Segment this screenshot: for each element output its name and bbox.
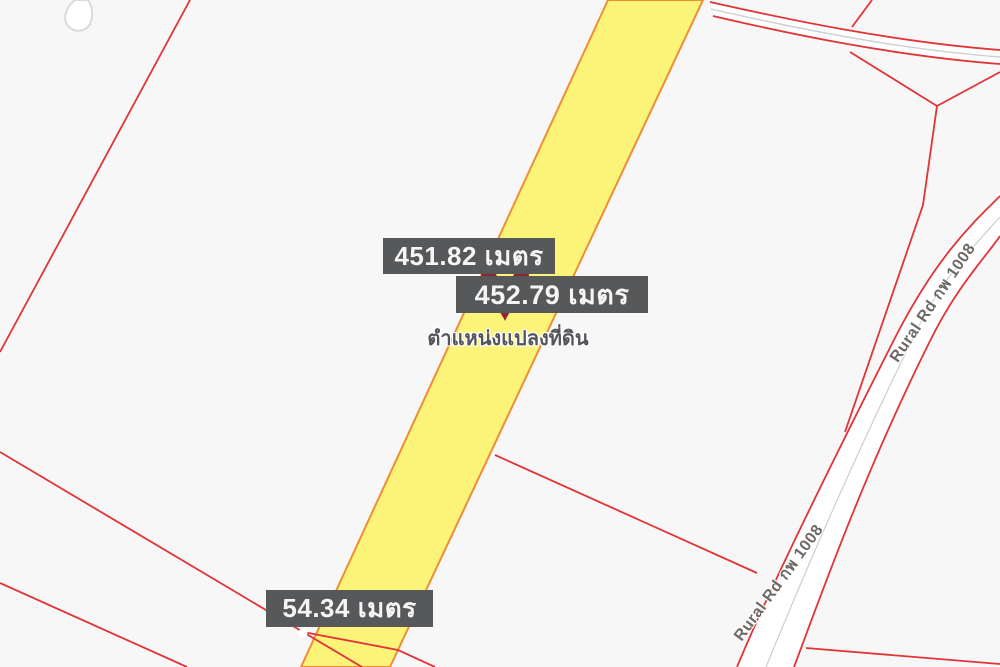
boundary-line-bottomright bbox=[806, 648, 1000, 664]
boundary-line-parcel-to-road bbox=[495, 455, 757, 573]
boundary-line-topleft bbox=[0, 0, 190, 352]
marker-caption: ตำแหน่งแปลงที่ดิน bbox=[408, 322, 608, 354]
measurement-label-middle: 452.79 เมตร bbox=[456, 276, 648, 313]
boundary-line-lowerleft bbox=[0, 452, 362, 667]
boundary-line-bottomleft bbox=[0, 583, 187, 667]
measurement-label-top: 451.82 เมตร bbox=[383, 238, 555, 274]
road-rural-edge-e bbox=[794, 236, 1000, 667]
measurement-label-bottom: 54.34 เมตร bbox=[266, 590, 433, 627]
road-stub-topleft bbox=[65, 0, 92, 31]
boundary-line-topright-stub bbox=[852, 0, 872, 27]
boundary-line-road-split-b bbox=[937, 72, 1000, 106]
vertex-dot bbox=[299, 629, 308, 638]
boundary-line-road-split-a bbox=[850, 52, 937, 106]
cadastral-map-canvas[interactable]: ตำแหน่งแปลงที่ดิน 451.82 เมตร 452.79 เมต… bbox=[0, 0, 1000, 667]
